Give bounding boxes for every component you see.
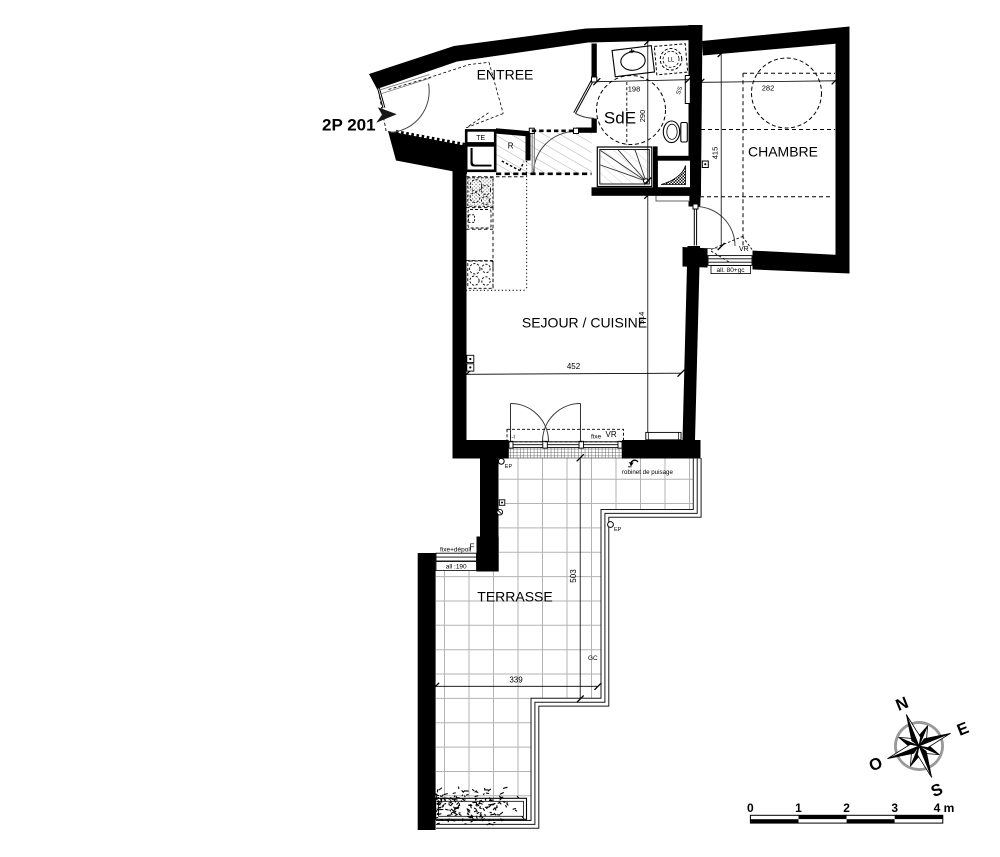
svg-text:1: 1 <box>795 801 802 815</box>
svg-text:503: 503 <box>569 569 578 583</box>
svg-text:LL: LL <box>668 58 675 64</box>
svg-text:198: 198 <box>628 85 641 94</box>
svg-text:robinet de puisage: robinet de puisage <box>622 469 673 476</box>
svg-text:R: R <box>508 142 514 151</box>
svg-text:4 m: 4 m <box>934 801 955 815</box>
svg-text:I-I: I-I <box>510 434 515 440</box>
svg-text:452: 452 <box>567 362 581 371</box>
svg-text:EP: EP <box>505 464 513 470</box>
svg-text:290: 290 <box>638 110 647 123</box>
svg-text:TE: TE <box>476 135 485 142</box>
svg-text:TERRASSE: TERRASSE <box>477 589 552 605</box>
svg-text:ENTREE: ENTREE <box>477 66 534 82</box>
svg-text:all. 80+gc: all. 80+gc <box>716 267 745 274</box>
svg-text:CHAMBRE: CHAMBRE <box>748 144 818 160</box>
svg-text:282: 282 <box>762 84 775 93</box>
svg-text:fixe+dépoli: fixe+dépoli <box>440 547 471 554</box>
svg-text:VR: VR <box>606 430 617 439</box>
svg-text:F: F <box>470 543 475 552</box>
svg-text:VR: VR <box>739 246 749 253</box>
svg-text:0: 0 <box>747 801 754 815</box>
svg-text:SdE: SdE <box>604 109 636 128</box>
svg-text:SEJOUR / CUISINE: SEJOUR / CUISINE <box>522 315 647 331</box>
svg-text:2: 2 <box>843 801 850 815</box>
svg-text:EP: EP <box>614 527 622 533</box>
svg-text:2P 201: 2P 201 <box>322 116 376 135</box>
svg-text:all :190: all :190 <box>446 563 467 570</box>
svg-text:GC: GC <box>588 655 598 662</box>
svg-text:415: 415 <box>711 147 720 160</box>
svg-text:339: 339 <box>509 675 523 684</box>
svg-text:fixe: fixe <box>591 434 602 441</box>
svg-text:3: 3 <box>891 801 898 815</box>
